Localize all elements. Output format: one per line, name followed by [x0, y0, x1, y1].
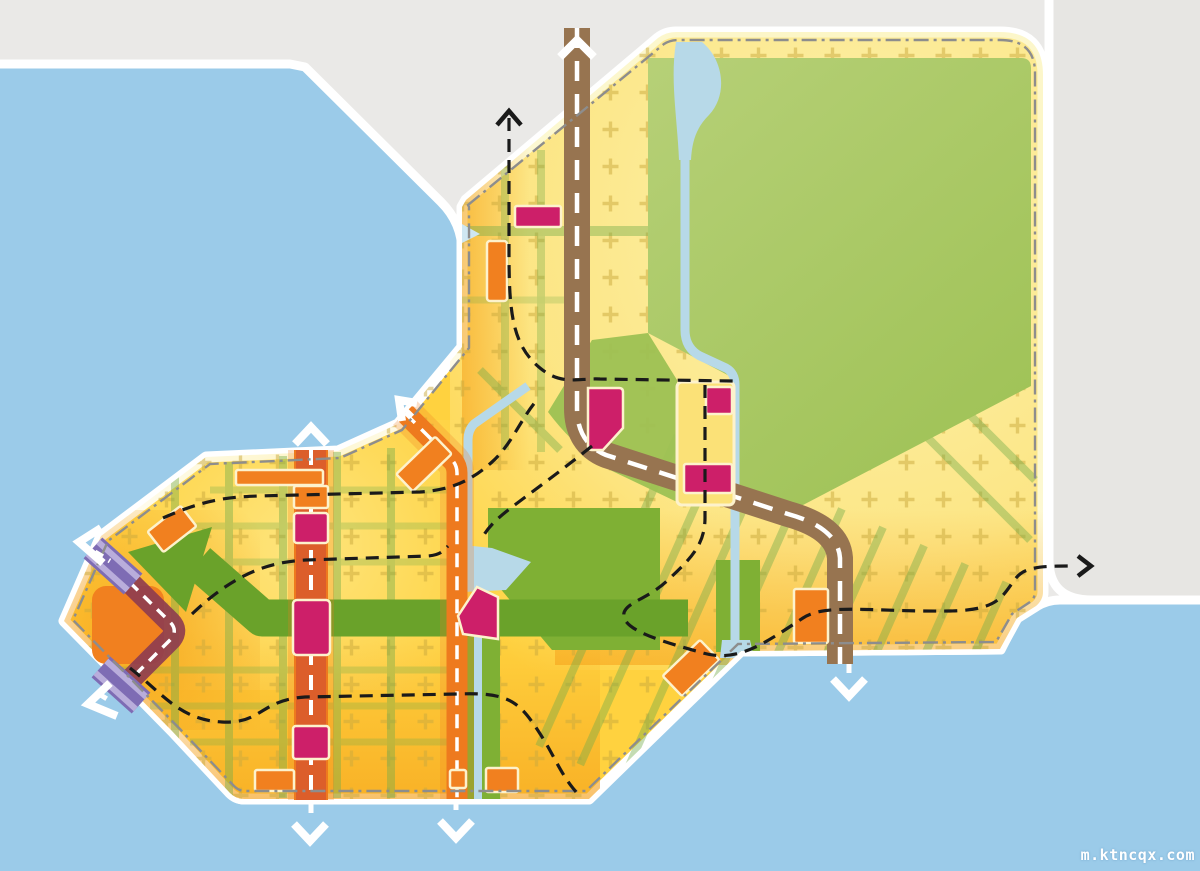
orange-block — [236, 470, 323, 485]
magenta-block — [294, 513, 328, 543]
mainland-east-block — [1049, 0, 1200, 600]
map-canvas — [0, 0, 1200, 871]
magenta-block — [293, 726, 329, 759]
orange-block — [450, 770, 466, 788]
magenta-block — [706, 387, 732, 414]
orange-block — [487, 241, 507, 301]
watermark: m.ktncqx.com — [1081, 846, 1195, 864]
magenta-block — [515, 206, 561, 227]
orange-block — [486, 768, 518, 792]
planning-map: m.ktncqx.com — [0, 0, 1200, 871]
orange-block — [794, 589, 828, 643]
orange-block — [294, 486, 328, 508]
magenta-block — [684, 464, 732, 493]
magenta-block — [293, 600, 330, 655]
orange-block — [255, 770, 294, 791]
